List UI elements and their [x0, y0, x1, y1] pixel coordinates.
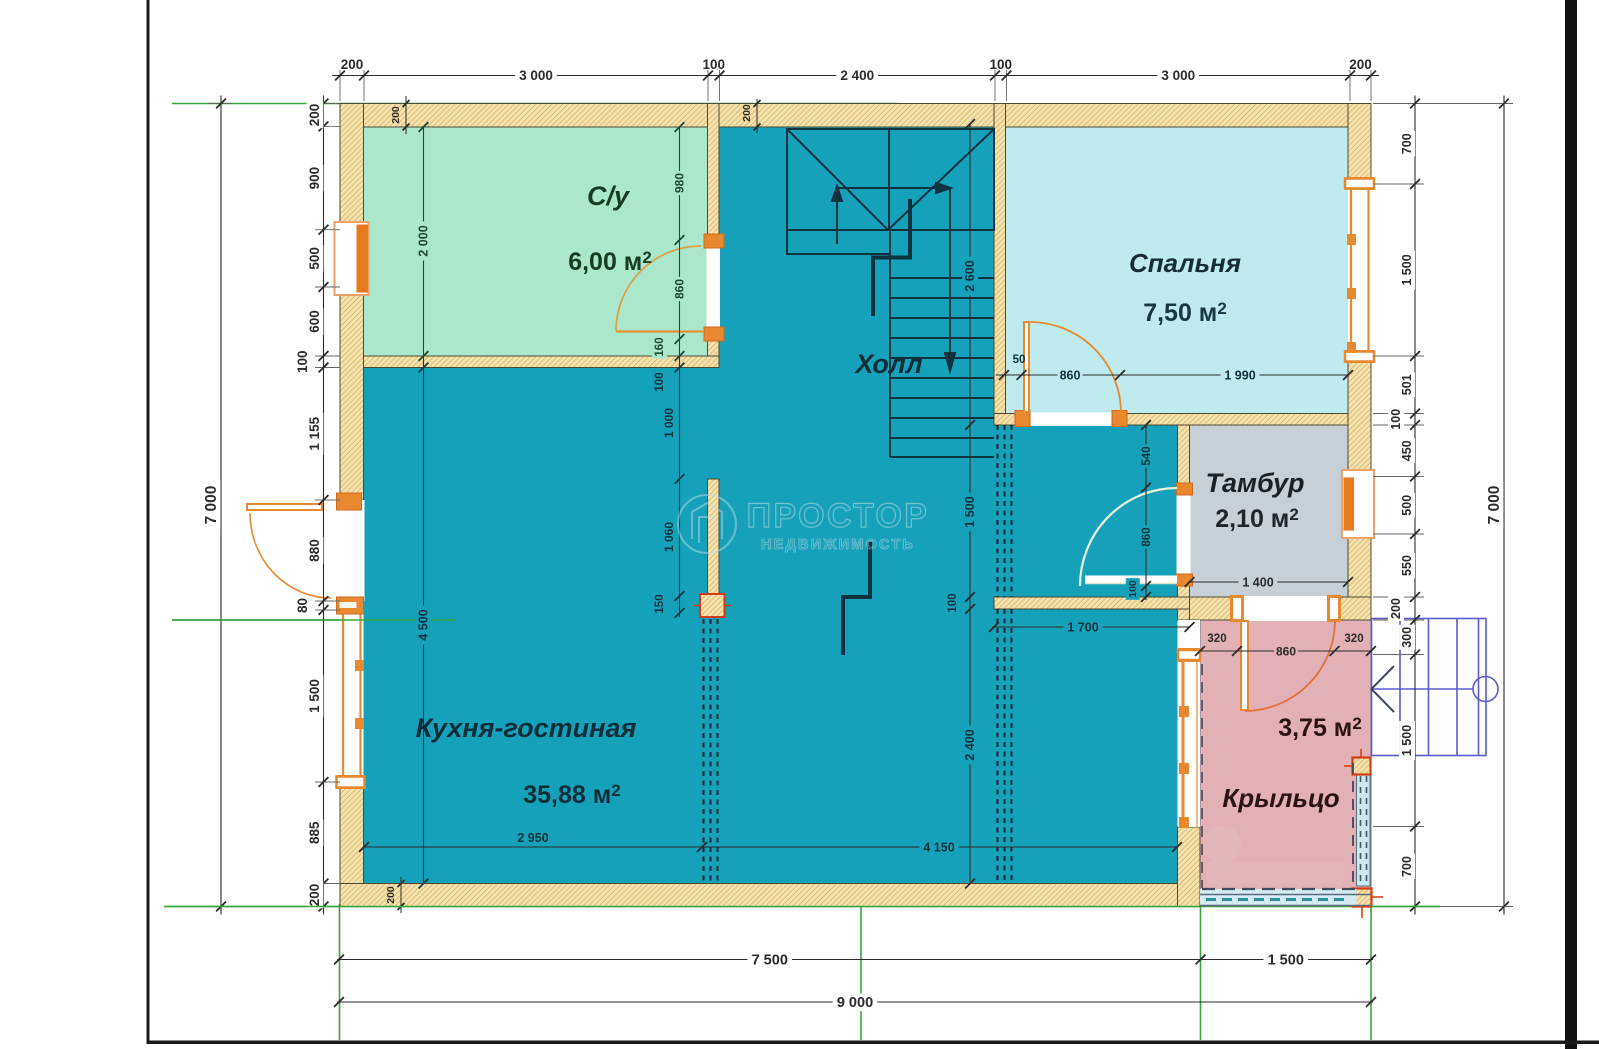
svg-text:450: 450: [1400, 440, 1414, 461]
svg-text:9 000: 9 000: [837, 995, 873, 1011]
svg-text:200: 200: [307, 104, 322, 127]
svg-text:200: 200: [1349, 57, 1372, 72]
svg-text:100: 100: [947, 593, 959, 612]
svg-text:200: 200: [741, 104, 753, 122]
svg-text:860: 860: [1060, 369, 1081, 383]
svg-text:320: 320: [1344, 633, 1363, 645]
svg-text:3,75 м2: 3,75 м2: [1278, 714, 1362, 742]
svg-text:500: 500: [1400, 495, 1414, 516]
svg-text:200: 200: [341, 57, 364, 72]
svg-text:880: 880: [307, 539, 322, 562]
svg-text:550: 550: [1400, 555, 1414, 576]
svg-text:7,50 м2: 7,50 м2: [1143, 299, 1227, 327]
svg-text:НЕДВИЖИМОСТЬ: НЕДВИЖИМОСТЬ: [761, 537, 915, 553]
svg-text:3 000: 3 000: [519, 68, 553, 83]
svg-text:540: 540: [1141, 446, 1153, 465]
svg-text:600: 600: [307, 310, 322, 333]
svg-text:885: 885: [307, 821, 322, 844]
svg-text:100: 100: [295, 350, 310, 373]
svg-text:1 500: 1 500: [1400, 725, 1414, 756]
svg-text:1 500: 1 500: [307, 679, 322, 713]
svg-text:501: 501: [1400, 374, 1414, 395]
svg-text:2 000: 2 000: [417, 225, 431, 256]
svg-text:2,10 м2: 2,10 м2: [1215, 505, 1299, 533]
svg-text:1 060: 1 060: [662, 522, 676, 552]
svg-text:1 990: 1 990: [1224, 369, 1255, 383]
svg-text:100: 100: [1127, 580, 1139, 598]
svg-text:320: 320: [1207, 633, 1226, 645]
svg-text:6,00 м2: 6,00 м2: [568, 248, 652, 276]
svg-text:2 400: 2 400: [840, 68, 874, 83]
svg-text:500: 500: [307, 247, 322, 270]
svg-text:Тамбур: Тамбур: [1205, 468, 1304, 498]
svg-text:200: 200: [307, 884, 322, 907]
svg-text:7 000: 7 000: [203, 486, 220, 525]
svg-text:С/у: С/у: [587, 181, 631, 211]
svg-text:100: 100: [654, 372, 666, 391]
svg-text:Кухня-гостиная: Кухня-гостиная: [416, 713, 637, 743]
svg-text:200: 200: [385, 886, 397, 904]
svg-text:700: 700: [1400, 856, 1414, 877]
svg-text:1 500: 1 500: [1400, 254, 1414, 285]
svg-text:Спальня: Спальня: [1129, 248, 1241, 278]
svg-text:2 950: 2 950: [517, 831, 548, 845]
svg-text:100: 100: [702, 57, 725, 72]
svg-text:7 000: 7 000: [1486, 486, 1503, 525]
svg-text:860: 860: [673, 279, 687, 299]
svg-text:ПРОСТОР: ПРОСТОР: [747, 497, 930, 535]
svg-text:3 000: 3 000: [1161, 68, 1195, 83]
svg-text:100: 100: [1389, 409, 1403, 430]
svg-text:860: 860: [1141, 527, 1153, 546]
svg-text:150: 150: [654, 594, 666, 613]
svg-text:700: 700: [1400, 133, 1414, 154]
svg-text:100: 100: [989, 57, 1012, 72]
svg-text:4 500: 4 500: [417, 609, 431, 640]
svg-text:1 400: 1 400: [1242, 576, 1273, 590]
svg-text:1 500: 1 500: [1268, 952, 1304, 968]
svg-text:160: 160: [654, 337, 666, 356]
svg-text:1 155: 1 155: [307, 416, 322, 450]
svg-text:1 700: 1 700: [1067, 621, 1098, 635]
svg-text:7 500: 7 500: [752, 952, 788, 968]
svg-text:300: 300: [1400, 627, 1414, 648]
svg-text:2 400: 2 400: [963, 729, 977, 760]
svg-text:2 600: 2 600: [963, 260, 977, 291]
svg-text:50: 50: [1013, 354, 1026, 366]
svg-text:200: 200: [1389, 598, 1403, 619]
svg-text:4 150: 4 150: [923, 841, 954, 855]
svg-text:Крыльцо: Крыльцо: [1222, 783, 1339, 813]
svg-text:900: 900: [307, 167, 322, 190]
svg-text:200: 200: [390, 106, 402, 124]
svg-text:980: 980: [673, 173, 687, 193]
svg-text:Холл: Холл: [853, 349, 922, 379]
svg-text:35,88 м2: 35,88 м2: [523, 781, 620, 809]
svg-text:1 000: 1 000: [662, 408, 676, 438]
svg-text:1 500: 1 500: [963, 496, 977, 527]
svg-text:860: 860: [1276, 645, 1296, 659]
svg-text:80: 80: [295, 598, 310, 613]
